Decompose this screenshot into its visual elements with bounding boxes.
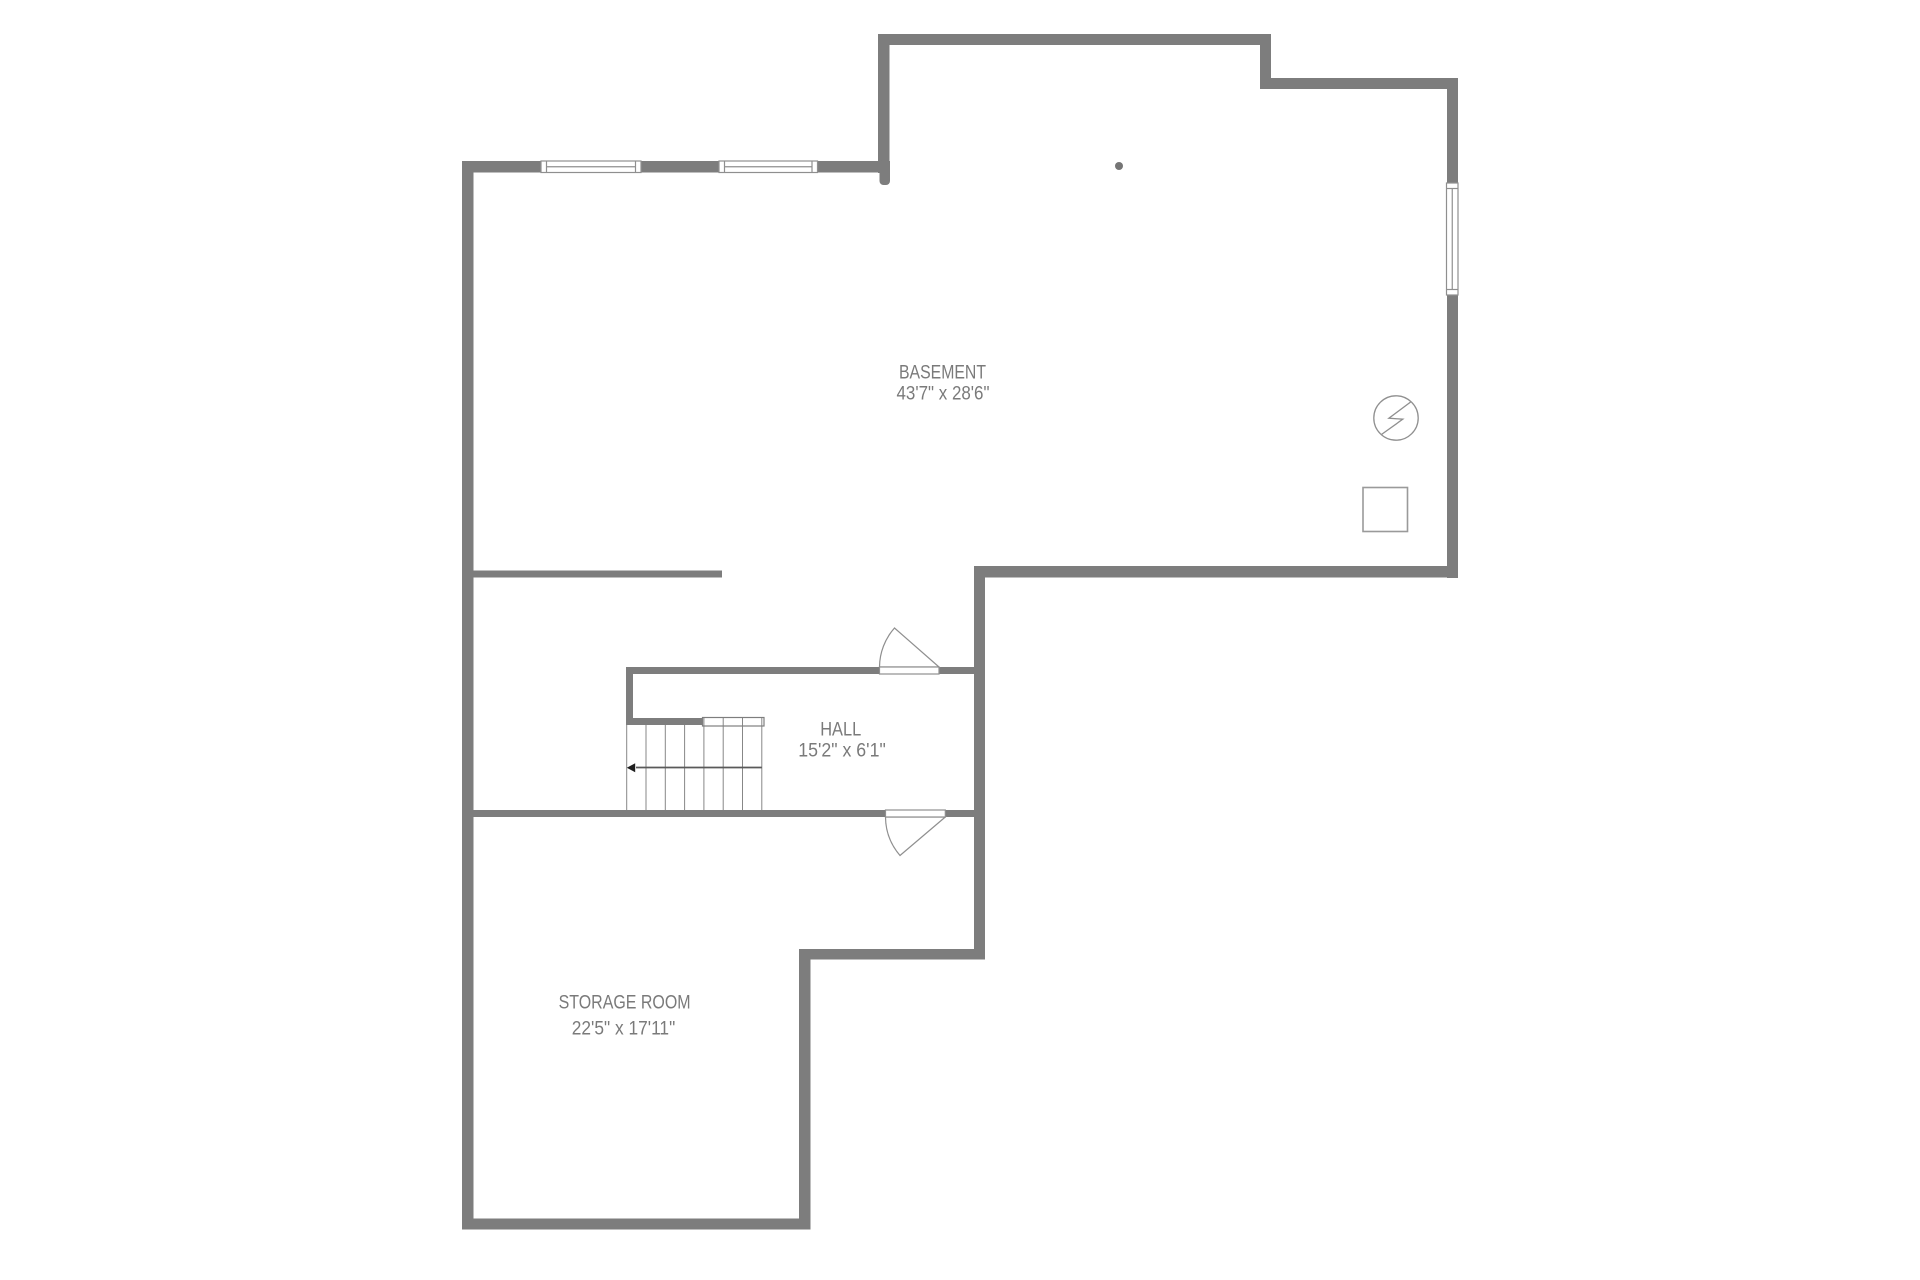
svg-text:STORAGE ROOM: STORAGE ROOM [559, 993, 691, 1014]
svg-text:43'7" x 28'6": 43'7" x 28'6" [897, 384, 990, 405]
svg-text:BASEMENT: BASEMENT [899, 362, 986, 383]
svg-text:HALL: HALL [820, 720, 861, 741]
svg-text:22'5" x 17'11": 22'5" x 17'11" [572, 1018, 676, 1039]
svg-text:15'2" x 6'1": 15'2" x 6'1" [798, 741, 886, 762]
